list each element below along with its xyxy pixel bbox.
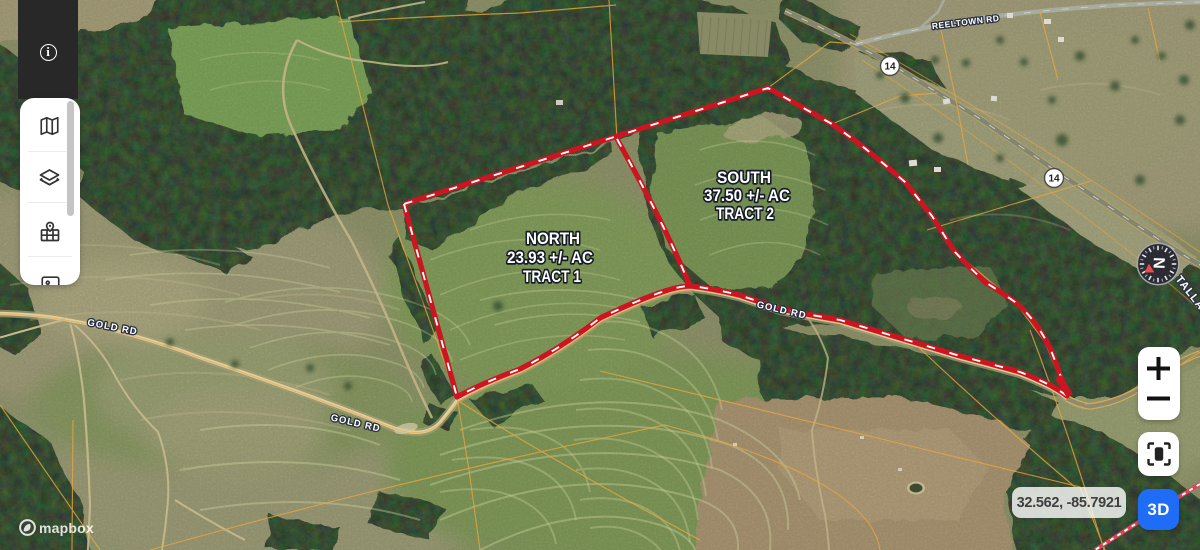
svg-text:23.93 +/- AC: 23.93 +/- AC [507,248,593,267]
svg-text:14: 14 [884,62,896,73]
svg-text:14: 14 [1048,174,1060,185]
svg-text:37.50 +/- AC: 37.50 +/- AC [704,186,790,205]
svg-text:TRACT 1: TRACT 1 [523,267,581,286]
svg-text:SOUTH: SOUTH [717,168,771,187]
svg-text:TRACT 2: TRACT 2 [716,204,774,223]
svg-text:N: N [1151,257,1168,269]
svg-text:NORTH: NORTH [526,229,580,248]
